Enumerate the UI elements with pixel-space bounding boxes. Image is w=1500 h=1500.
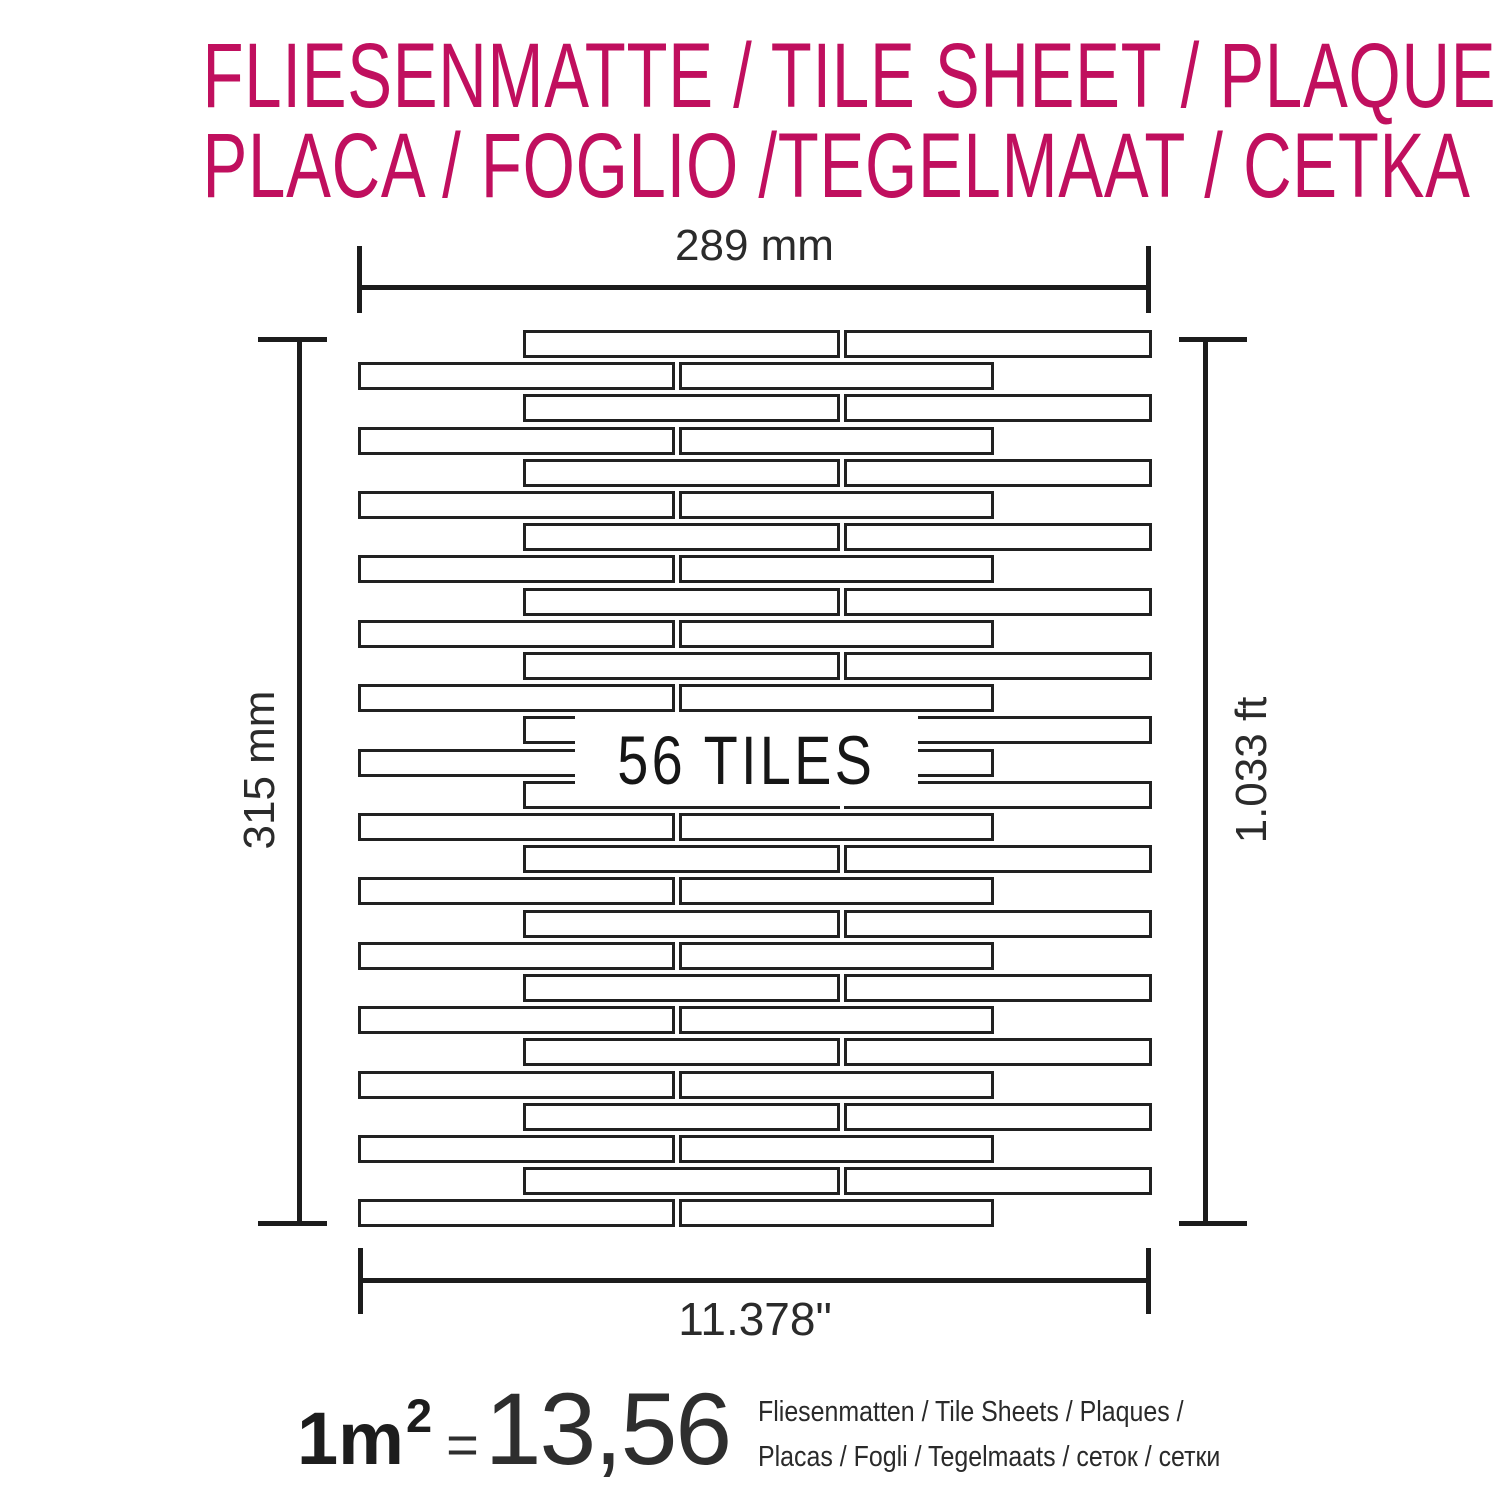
tile: [358, 1071, 675, 1099]
tile: [679, 1199, 994, 1227]
dimension-cap-top-right: [1146, 246, 1151, 313]
tile: [358, 813, 675, 841]
tile: [523, 394, 840, 422]
tile: [844, 1038, 1152, 1066]
tile: [358, 1006, 675, 1034]
units-line-1: Fliesenmatten / Tile Sheets / Plaques /: [758, 1390, 1220, 1435]
tile: [523, 845, 840, 873]
tile: [523, 523, 840, 551]
tile: [523, 459, 840, 487]
tile: [679, 1135, 994, 1163]
tile: [844, 652, 1152, 680]
dimension-cap-left-bottom: [258, 1221, 327, 1226]
tile: [844, 1167, 1152, 1195]
tile: [844, 330, 1152, 358]
sheets-units-multilang: Fliesenmatten / Tile Sheets / Plaques / …: [758, 1390, 1220, 1480]
tile: [523, 1103, 840, 1131]
dimension-label-right: 1.033 ft: [1227, 620, 1277, 920]
dimension-line-right: [1203, 339, 1208, 1224]
tile: [523, 1167, 840, 1195]
tile: [844, 910, 1152, 938]
tile: [358, 684, 675, 712]
tile: [679, 813, 994, 841]
dimension-cap-left-top: [258, 337, 327, 342]
tile: [679, 942, 994, 970]
tiles-count-label: 56 TILES: [618, 726, 876, 795]
dimension-line-left: [297, 339, 302, 1224]
tile: [844, 459, 1152, 487]
sheets-per-sqm: 13,56: [485, 1378, 730, 1480]
tile: [358, 362, 675, 390]
area-exponent: 2: [406, 1388, 432, 1443]
tile: [523, 974, 840, 1002]
tile: [844, 588, 1152, 616]
tile: [358, 620, 675, 648]
tile: [679, 1071, 994, 1099]
dimension-cap-top-left: [357, 246, 362, 313]
tile: [358, 1199, 675, 1227]
equals-sign: =: [446, 1412, 479, 1477]
tiles-count-label-box: 56 TILES: [575, 714, 918, 806]
tile: [523, 588, 840, 616]
dimension-line-top: [359, 285, 1150, 290]
area-value: 1m: [297, 1402, 404, 1476]
tile: [679, 555, 994, 583]
tile: [523, 1038, 840, 1066]
tile: [358, 1135, 675, 1163]
dimension-line-bottom: [360, 1278, 1150, 1283]
tile: [679, 427, 994, 455]
tile: [679, 362, 994, 390]
tile: [679, 877, 994, 905]
dimension-cap-right-top: [1179, 337, 1247, 342]
tile: [358, 427, 675, 455]
tile: [844, 974, 1152, 1002]
tile: [679, 1006, 994, 1034]
tile: [844, 523, 1152, 551]
tile: [523, 330, 840, 358]
tile: [844, 394, 1152, 422]
tile: [523, 652, 840, 680]
tile: [679, 491, 994, 519]
tile: [358, 491, 675, 519]
dimension-label-bottom: 11.378": [360, 1296, 1150, 1342]
tile: [679, 684, 994, 712]
tile: [844, 1103, 1152, 1131]
dimension-label-top: 289 mm: [359, 224, 1150, 268]
tile: [523, 910, 840, 938]
tile: [358, 877, 675, 905]
tile: [679, 620, 994, 648]
tile: [358, 555, 675, 583]
dimension-label-left: 315 mm: [235, 620, 285, 920]
coverage-formula: 1m2 = 13,56 Fliesenmatten / Tile Sheets …: [297, 1378, 1296, 1480]
dimension-cap-right-bottom: [1179, 1221, 1247, 1226]
tile: [358, 942, 675, 970]
tile: [844, 845, 1152, 873]
page: FLIESENMATTE / TILE SHEET / PLAQUE PLACA…: [0, 0, 1500, 1500]
units-line-2: Placas / Fogli / Tegelmaats / сеток / се…: [758, 1435, 1220, 1480]
